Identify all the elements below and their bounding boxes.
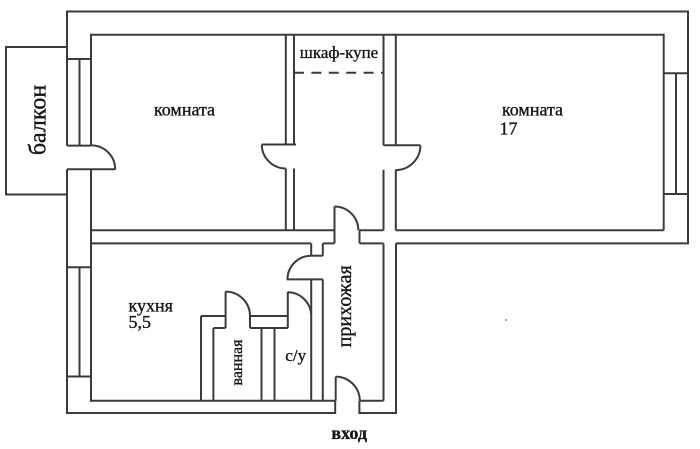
- svg-text:шкаф-купе: шкаф-купе: [300, 43, 378, 62]
- svg-text:с/у: с/у: [285, 346, 306, 365]
- svg-text:вход: вход: [331, 423, 367, 443]
- svg-text:прихожая: прихожая: [334, 265, 356, 347]
- svg-text:балкон: балкон: [26, 85, 52, 155]
- svg-text:ванная: ванная: [229, 339, 246, 386]
- svg-text:5,5: 5,5: [129, 312, 152, 332]
- svg-text:комната: комната: [154, 100, 215, 120]
- svg-text:17: 17: [500, 119, 518, 139]
- svg-text:комната: комната: [502, 100, 563, 120]
